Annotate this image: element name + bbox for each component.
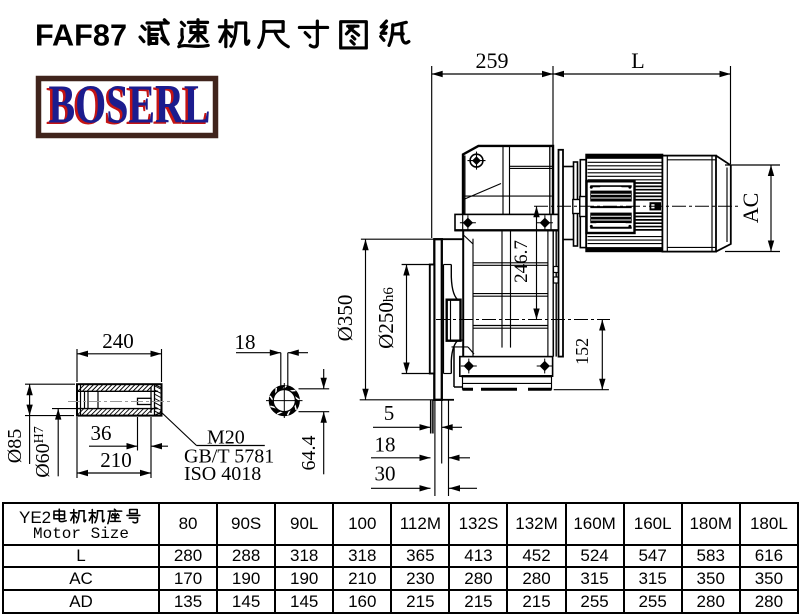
svg-text:246.7: 246.7 [511, 240, 532, 283]
svg-text:Ø350: Ø350 [333, 295, 357, 342]
svg-text:18: 18 [375, 433, 396, 457]
svg-text:Ø60H7: Ø60H7 [32, 426, 54, 478]
svg-text:5: 5 [384, 401, 395, 425]
svg-text:152: 152 [572, 338, 592, 365]
svg-text:30: 30 [375, 462, 396, 486]
svg-text:64.4: 64.4 [298, 436, 320, 471]
svg-text:Ø85: Ø85 [4, 429, 26, 463]
svg-text:FAF87: FAF87 [35, 18, 127, 53]
svg-text:ISO 4018: ISO 4018 [184, 463, 261, 485]
svg-text:240: 240 [102, 329, 134, 353]
svg-text:36: 36 [91, 421, 112, 445]
svg-text:18: 18 [235, 330, 256, 354]
svg-text:210: 210 [100, 448, 132, 472]
svg-text:YE2: YE2 [19, 508, 51, 527]
svg-text:BOSERL: BOSERL [49, 74, 211, 135]
svg-text:Ø250h6: Ø250h6 [374, 287, 398, 349]
svg-text:AC: AC [738, 193, 763, 224]
svg-text:259: 259 [476, 48, 509, 73]
svg-text:L: L [631, 48, 644, 73]
